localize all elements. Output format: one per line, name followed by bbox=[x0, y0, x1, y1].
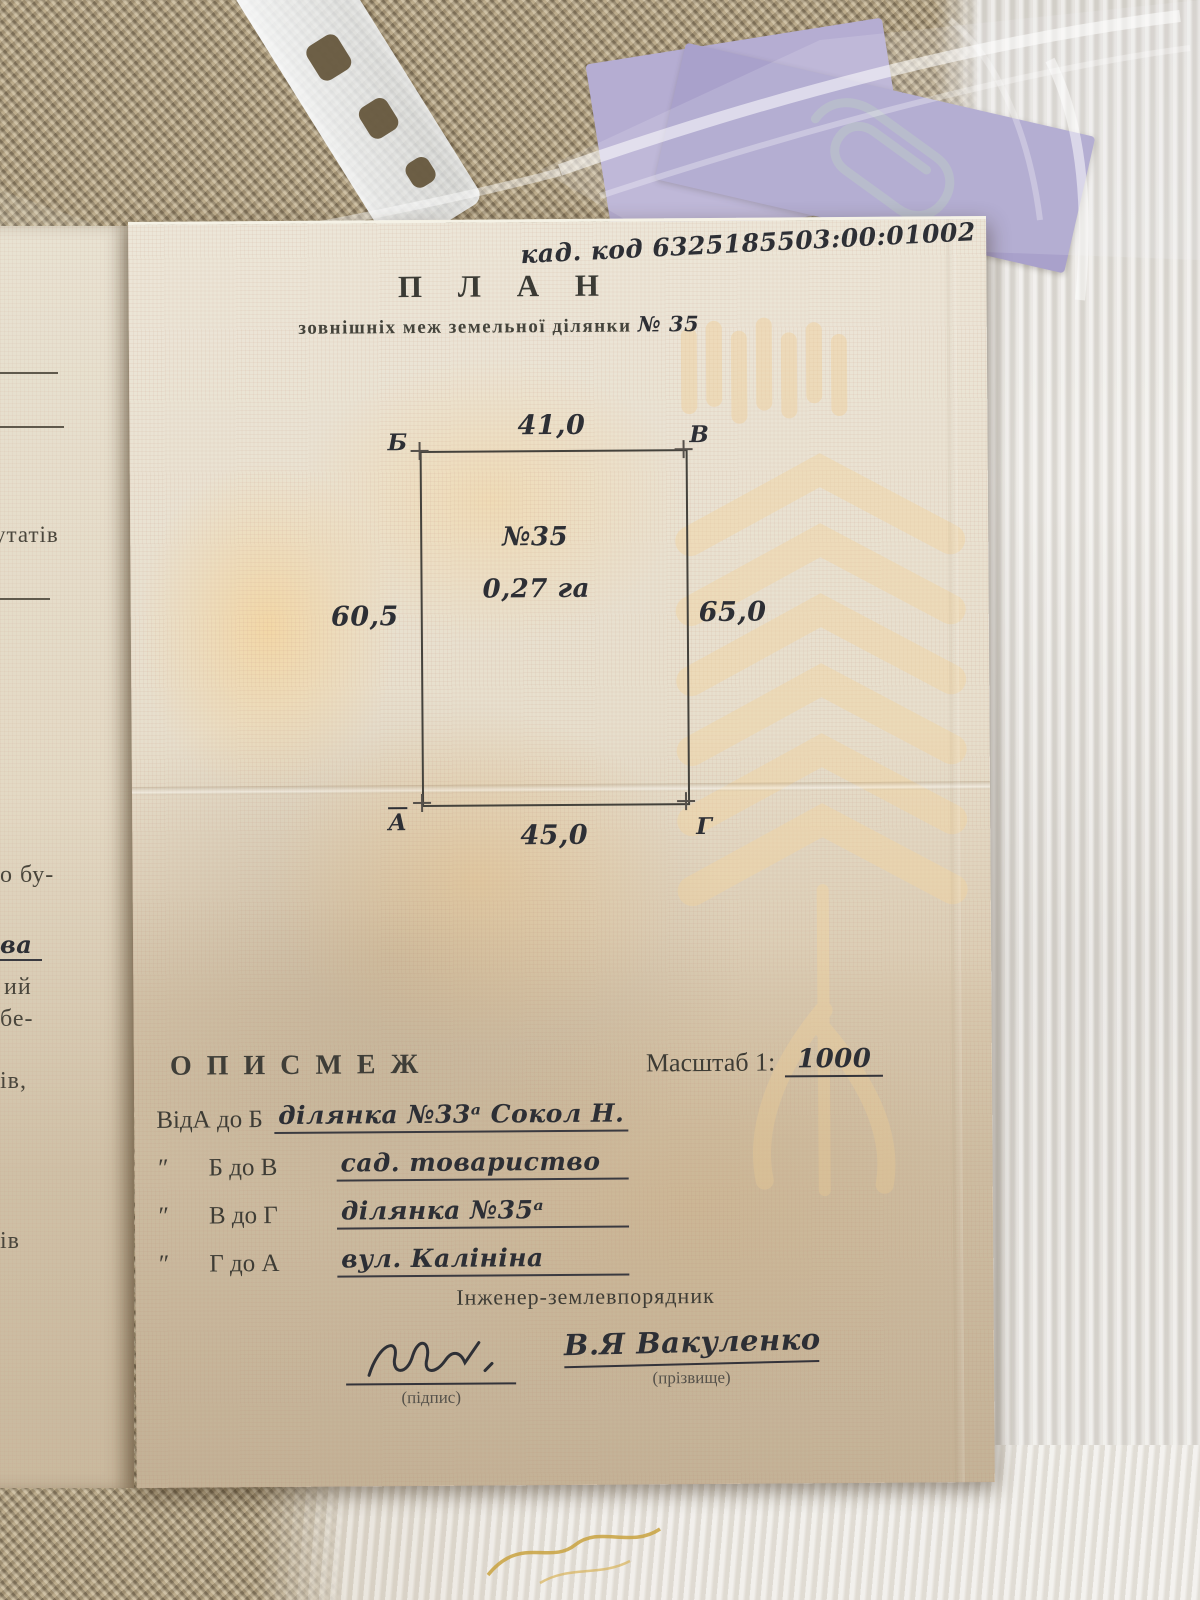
row-segment: Б до В bbox=[209, 1154, 337, 1183]
dimension-left: 60,5 bbox=[299, 601, 399, 633]
corner-tick bbox=[677, 792, 695, 810]
left-page-text-fragment: ва bbox=[0, 930, 42, 961]
left-page-text-fragment: бе- bbox=[0, 1006, 34, 1033]
gold-chain bbox=[480, 1505, 700, 1600]
plot-boundary-rectangle bbox=[420, 449, 690, 807]
document-subtitle: зовнішніх меж земельної ділянки bbox=[298, 315, 631, 338]
dimension-right: 65,0 bbox=[699, 597, 767, 628]
wheat-ear bbox=[690, 469, 953, 891]
plot-number-handwritten: № 35 bbox=[638, 311, 700, 336]
photo-scene: утатів о бу- ва ий бе- ів, ів bbox=[0, 0, 1200, 1600]
boundary-row: ″ Г до А вул. Калініна bbox=[151, 1240, 629, 1279]
corner-label-top-left: Б bbox=[387, 429, 407, 456]
gold-chain-thread bbox=[488, 1529, 660, 1575]
boundary-row: ″ В до Г ділянка №35ᵃ bbox=[151, 1192, 629, 1231]
row-segment: В до Г bbox=[209, 1202, 337, 1231]
document-subtitle-line: зовнішніх меж земельної ділянки № 35 bbox=[219, 310, 779, 340]
surname-caption: (прізвище) bbox=[564, 1367, 819, 1389]
form-line bbox=[0, 598, 50, 600]
title-block: П Л А Н зовнішніх меж земельної ділянки … bbox=[218, 266, 778, 340]
wheat-stem bbox=[760, 890, 886, 1191]
dimension-top: 41,0 bbox=[419, 409, 683, 442]
description-heading: О П И С М Е Ж bbox=[170, 1049, 423, 1083]
row-prefix: ″ bbox=[151, 1250, 209, 1278]
document-left-page: утатів о бу- ва ий бе- ів, ів bbox=[0, 226, 134, 1488]
engineer-name: В.Я Вакуленко bbox=[563, 1322, 819, 1368]
document-title: П Л А Н bbox=[218, 266, 778, 306]
strip-hole bbox=[355, 95, 401, 142]
left-page-text-fragment: ів, bbox=[0, 1068, 27, 1095]
form-line bbox=[0, 426, 64, 428]
corner-label-bottom-left: А bbox=[388, 809, 407, 836]
scale-value: 1000 bbox=[785, 1044, 883, 1078]
signature-scribble bbox=[361, 1330, 501, 1383]
corner-label-bottom-right: Г bbox=[696, 813, 713, 840]
signature-caption: (підпис) bbox=[346, 1387, 516, 1408]
left-page-text-fragment: ів bbox=[0, 1228, 20, 1255]
row-value: вул. Калініна bbox=[337, 1243, 629, 1278]
row-segment: А до Б bbox=[193, 1106, 275, 1135]
row-prefix: Від bbox=[150, 1107, 193, 1135]
scale-line: Масштаб 1: 1000 bbox=[646, 1044, 884, 1079]
row-value: сад. товариство bbox=[336, 1147, 628, 1182]
row-prefix: ″ bbox=[151, 1202, 209, 1230]
strip-hole bbox=[303, 31, 355, 84]
surname-block: В.Я Вакуленко (прізвище) bbox=[564, 1324, 819, 1389]
boundary-row: ″ Б до В сад. товариство bbox=[150, 1144, 628, 1183]
perforated-strip bbox=[231, 0, 484, 254]
corner-tick bbox=[413, 794, 431, 812]
signature-line bbox=[346, 1330, 516, 1385]
engineer-title: Інженер-землевпорядник bbox=[375, 1282, 795, 1311]
plot-area: 0,27 га bbox=[482, 574, 590, 605]
cadastral-code: кад. код 6325185503:00:01002 bbox=[520, 217, 977, 269]
strip-hole bbox=[402, 154, 439, 192]
form-line bbox=[0, 372, 58, 374]
corner-tick bbox=[411, 442, 429, 460]
row-value: ділянка №35ᵃ bbox=[337, 1195, 629, 1230]
left-page-text-fragment: утатів bbox=[0, 522, 59, 548]
boundary-rows: Від А до Б ділянка №33ᵃ Сокол Н. ″ Б до … bbox=[150, 1096, 629, 1291]
row-segment: Г до А bbox=[209, 1250, 337, 1279]
signature-block: (підпис) bbox=[346, 1330, 517, 1408]
scale-label: Масштаб 1: bbox=[646, 1048, 776, 1079]
row-prefix: ″ bbox=[151, 1154, 209, 1182]
land-plan-document: кад. код 6325185503:00:01002 П Л А Н зов… bbox=[128, 216, 995, 1488]
wheat-comb bbox=[689, 325, 840, 416]
left-page-text-fragment: о бу- bbox=[0, 862, 54, 889]
corner-label-top-right: В bbox=[689, 421, 709, 448]
row-value: ділянка №33ᵃ Сокол Н. bbox=[274, 1099, 628, 1134]
boundary-row: Від А до Б ділянка №33ᵃ Сокол Н. bbox=[150, 1096, 628, 1135]
plot-number: №35 bbox=[502, 522, 568, 552]
gold-chain-thread bbox=[540, 1561, 630, 1583]
left-page-text-fragment: ий bbox=[4, 974, 32, 1001]
dimension-bottom: 45,0 bbox=[422, 819, 686, 852]
signature-ink bbox=[369, 1342, 492, 1375]
